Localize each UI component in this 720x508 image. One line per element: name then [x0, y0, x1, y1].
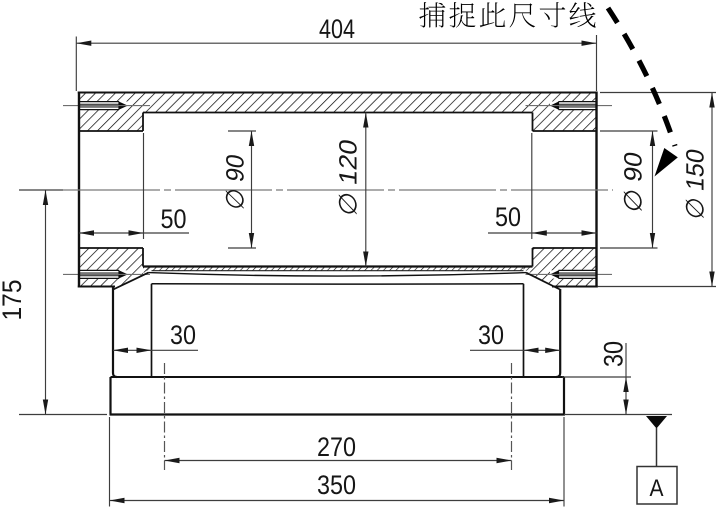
svg-text:30: 30 [170, 320, 196, 350]
svg-text:50: 50 [161, 204, 187, 234]
svg-text:404: 404 [319, 14, 355, 44]
svg-text:A: A [650, 475, 664, 502]
svg-text:350: 350 [317, 470, 356, 500]
svg-text:30: 30 [599, 341, 629, 367]
svg-text:∅ 150: ∅ 150 [682, 147, 710, 222]
svg-text:∅ 90: ∅ 90 [620, 150, 648, 215]
svg-text:30: 30 [478, 320, 504, 350]
svg-text:175: 175 [0, 280, 27, 321]
svg-text:∅ 90: ∅ 90 [222, 152, 250, 212]
svg-text:50: 50 [495, 202, 521, 232]
svg-text:270: 270 [317, 432, 356, 462]
svg-text:∅ 120: ∅ 120 [335, 137, 363, 218]
